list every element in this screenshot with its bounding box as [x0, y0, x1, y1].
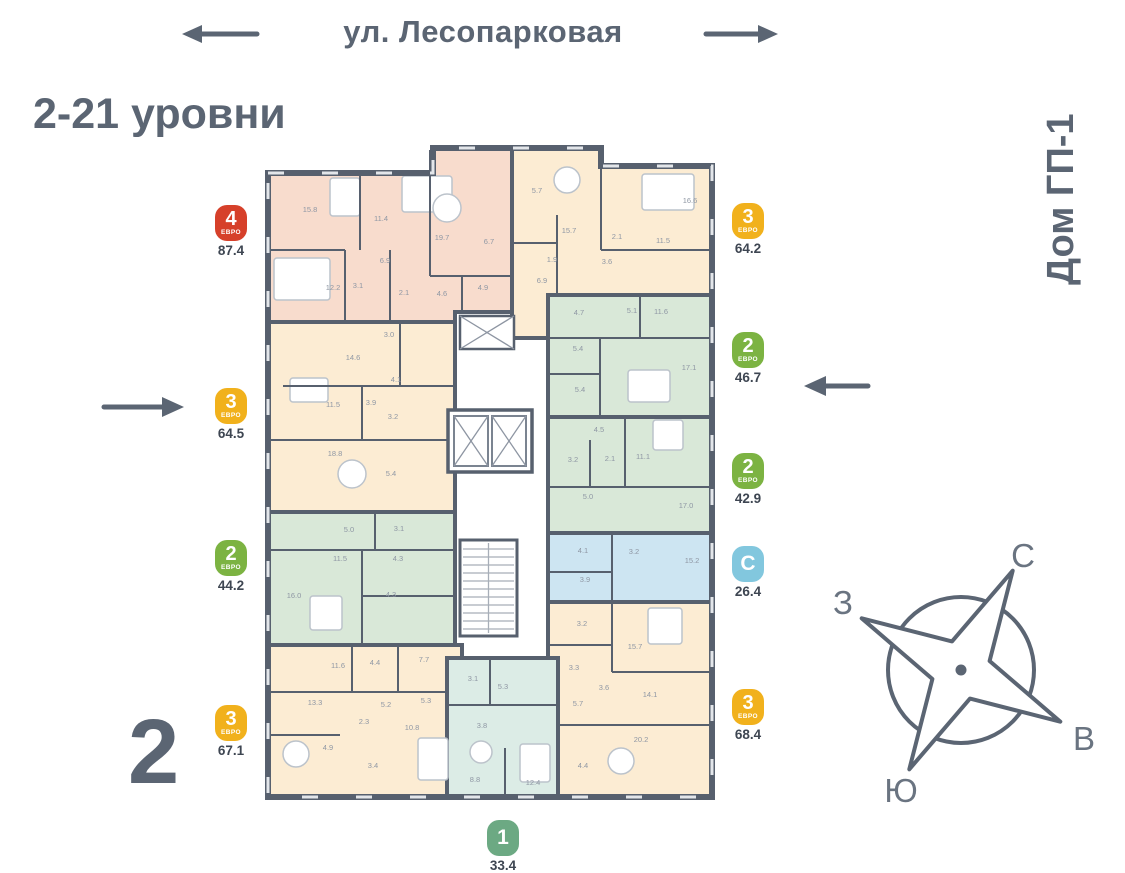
room-area-label: 4.6 — [437, 289, 447, 298]
room-area-label: 3.2 — [388, 412, 398, 421]
furniture-icon — [418, 738, 448, 780]
room-area-label: 5.4 — [575, 385, 585, 394]
room-area-label: 6.7 — [484, 237, 494, 246]
unit-area-value: 68.4 — [708, 727, 788, 742]
unit-type-chip: 1 — [487, 820, 519, 856]
room-area-label: 6.9 — [380, 256, 390, 265]
room-area-label: 11.4 — [374, 214, 388, 223]
room-area-label: 5.3 — [498, 682, 508, 691]
room-area-label: 3.8 — [477, 721, 487, 730]
unit-area-value: 26.4 — [708, 584, 788, 599]
unit-type-number: 1 — [497, 820, 509, 856]
room-area-label: 1.9 — [547, 255, 557, 264]
furniture-icon — [274, 258, 330, 300]
furniture-icon — [330, 178, 360, 216]
room-area-label: 5.7 — [573, 699, 583, 708]
unit-badge-b2[interactable]: 2ЕВРО46.7 — [708, 332, 788, 385]
room-area-label: 3.6 — [602, 257, 612, 266]
furniture-icon — [310, 596, 342, 630]
room-area-label: 4.3 — [393, 554, 403, 563]
unit-type-chip: 3ЕВРО — [732, 689, 764, 725]
room-area-label: 4.1 — [578, 546, 588, 555]
unit-type-number: 2 — [742, 458, 753, 477]
room-area-label: 20.2 — [634, 735, 649, 744]
unit-type-chip: 3ЕВРО — [215, 388, 247, 424]
unit-type-sublabel: ЕВРО — [221, 729, 241, 737]
unit-type-sublabel: ЕВРО — [738, 713, 758, 721]
room-area-label: 3.9 — [580, 575, 590, 584]
unit-badge-a3[interactable]: 2ЕВРО44.2 — [191, 540, 271, 593]
room-area-label: 8.8 — [470, 775, 480, 784]
furniture-icon — [628, 370, 670, 402]
entrance-arrow-west — [104, 397, 184, 417]
room-area-label: 3.1 — [468, 674, 478, 683]
room-area-label: 11.5 — [326, 400, 340, 409]
room-area-label: 4.4 — [578, 761, 588, 770]
room-area-label: 5.4 — [386, 469, 396, 478]
room-area-label: 4.4 — [370, 658, 380, 667]
room-area-label: 2.3 — [359, 717, 369, 726]
room-area-label: 5.4 — [573, 344, 583, 353]
apartment-region-b3[interactable] — [548, 417, 712, 533]
unit-type-number: 4 — [225, 210, 236, 229]
room-area-label: 5.7 — [532, 186, 542, 195]
room-area-label: 19.7 — [435, 233, 450, 242]
furniture-icon — [338, 460, 366, 488]
room-area-label: 3.6 — [599, 683, 609, 692]
room-area-label: 2.1 — [612, 232, 622, 241]
room-area-label: 12.4 — [526, 778, 541, 787]
furniture-icon — [653, 420, 683, 450]
room-area-label: 14.6 — [346, 353, 361, 362]
street-arrow-right — [706, 25, 778, 43]
unit-badge-b5[interactable]: 3ЕВРО68.4 — [708, 689, 788, 742]
furniture-icon — [283, 741, 309, 767]
compass-rose — [862, 571, 1061, 770]
furniture-icon — [554, 167, 580, 193]
unit-badge-a4[interactable]: 3ЕВРО67.1 — [191, 705, 271, 758]
staircase — [460, 540, 517, 636]
room-area-label: 15.7 — [562, 226, 577, 235]
room-area-label: 4.5 — [594, 425, 604, 434]
unit-type-number: 3 — [742, 694, 753, 713]
entrance-arrow-east — [804, 376, 868, 396]
unit-area-value: 64.5 — [191, 426, 271, 441]
room-area-label: 5.0 — [344, 525, 354, 534]
unit-area-value: 33.4 — [463, 858, 543, 873]
room-area-label: 17.1 — [682, 363, 697, 372]
unit-type-number: 2 — [225, 545, 236, 564]
compass-north-label: С — [1011, 537, 1035, 575]
unit-type-chip: 3ЕВРО — [732, 203, 764, 239]
unit-badge-a1[interactable]: 4ЕВРО87.4 — [191, 205, 271, 258]
room-area-label: 15.2 — [685, 556, 700, 565]
unit-badge-b4[interactable]: С26.4 — [708, 546, 788, 599]
room-area-label: 11.5 — [333, 554, 347, 563]
room-area-label: 16.0 — [287, 591, 302, 600]
apartment-region-b4[interactable] — [548, 533, 712, 602]
unit-area-value: 42.9 — [708, 491, 788, 506]
room-area-label: 15.8 — [303, 205, 318, 214]
unit-area-value: 67.1 — [191, 743, 271, 758]
compass-west-label: З — [833, 584, 853, 622]
furniture-icon — [520, 744, 550, 782]
furniture-icon — [608, 748, 634, 774]
unit-type-chip: 2ЕВРО — [215, 540, 247, 576]
unit-badge-a2[interactable]: 3ЕВРО64.5 — [191, 388, 271, 441]
room-area-label: 3.2 — [568, 455, 578, 464]
unit-type-chip: 2ЕВРО — [732, 332, 764, 368]
unit-type-sublabel: ЕВРО — [221, 412, 241, 420]
room-area-label: 3.2 — [577, 619, 587, 628]
unit-badge-b3[interactable]: 2ЕВРО42.9 — [708, 453, 788, 506]
room-area-label: 3.9 — [366, 398, 376, 407]
room-area-label: 5.3 — [421, 696, 431, 705]
floorplan-page: ул. Лесопарковая 2-21 уровни Дом ГП-1 2 … — [0, 0, 1125, 873]
room-area-label: 18.8 — [328, 449, 343, 458]
furniture-icon — [433, 194, 461, 222]
room-area-label: 16.6 — [683, 196, 698, 205]
room-area-label: 12.2 — [326, 283, 341, 292]
unit-type-number: 3 — [225, 393, 236, 412]
unit-type-number: 2 — [742, 337, 753, 356]
room-area-label: 3.0 — [384, 330, 394, 339]
room-area-label: 11.6 — [654, 307, 668, 316]
room-area-label: 11.6 — [331, 661, 345, 670]
room-area-label: 10.8 — [405, 723, 420, 732]
room-area-label: 3.2 — [629, 547, 639, 556]
unit-type-number: 3 — [742, 208, 753, 227]
unit-type-sublabel: ЕВРО — [738, 227, 758, 235]
room-area-label: 4.7 — [574, 308, 584, 317]
room-area-label: 5.2 — [381, 700, 391, 709]
room-area-label: 3.3 — [569, 663, 579, 672]
room-area-label: 7.7 — [419, 655, 429, 664]
unit-area-value: 44.2 — [191, 578, 271, 593]
room-area-label: 17.0 — [679, 501, 694, 510]
room-area-label: 15.7 — [628, 642, 643, 651]
unit-area-value: 87.4 — [191, 243, 271, 258]
furniture-icon — [470, 741, 492, 763]
unit-type-sublabel: ЕВРО — [738, 477, 758, 485]
room-area-label: 3.4 — [368, 761, 378, 770]
room-area-label: 4.9 — [323, 743, 333, 752]
unit-type-sublabel: ЕВРО — [738, 356, 758, 364]
unit-type-chip: С — [732, 546, 764, 582]
compass-center-dot — [956, 665, 967, 676]
room-area-label: 4.3 — [386, 590, 396, 599]
unit-type-sublabel: ЕВРО — [221, 564, 241, 572]
unit-type-chip: 2ЕВРО — [732, 453, 764, 489]
room-area-label: 5.1 — [627, 306, 637, 315]
unit-badge-b1[interactable]: 3ЕВРО64.2 — [708, 203, 788, 256]
room-area-label: 3.1 — [353, 281, 363, 290]
street-arrow-left — [182, 25, 257, 43]
room-area-label: 11.5 — [656, 236, 670, 245]
room-area-label: 11.1 — [636, 452, 650, 461]
unit-type-chip: 3ЕВРО — [215, 705, 247, 741]
unit-area-value: 46.7 — [708, 370, 788, 385]
unit-type-number: С — [740, 546, 755, 582]
furniture-icon — [290, 378, 328, 402]
unit-type-sublabel: ЕВРО — [221, 229, 241, 237]
room-area-label: 6.9 — [537, 276, 547, 285]
floor-plan: 15.811.419.76.76.912.23.12.14.64.914.63.… — [0, 0, 1125, 873]
unit-badge-c1[interactable]: 133.4 — [463, 820, 543, 873]
room-area-label: 4.1 — [391, 375, 401, 384]
room-area-label: 4.9 — [478, 283, 488, 292]
furniture-icon — [648, 608, 682, 644]
unit-area-value: 64.2 — [708, 241, 788, 256]
room-area-label: 2.1 — [399, 288, 409, 297]
room-area-label: 13.3 — [308, 698, 323, 707]
room-area-label: 3.1 — [394, 524, 404, 533]
unit-type-number: 3 — [225, 710, 236, 729]
room-area-label: 2.1 — [605, 454, 615, 463]
compass-east-label: В — [1073, 720, 1095, 758]
compass-south-label: Ю — [884, 772, 917, 810]
room-area-label: 5.0 — [583, 492, 593, 501]
unit-type-chip: 4ЕВРО — [215, 205, 247, 241]
room-area-label: 14.1 — [643, 690, 658, 699]
